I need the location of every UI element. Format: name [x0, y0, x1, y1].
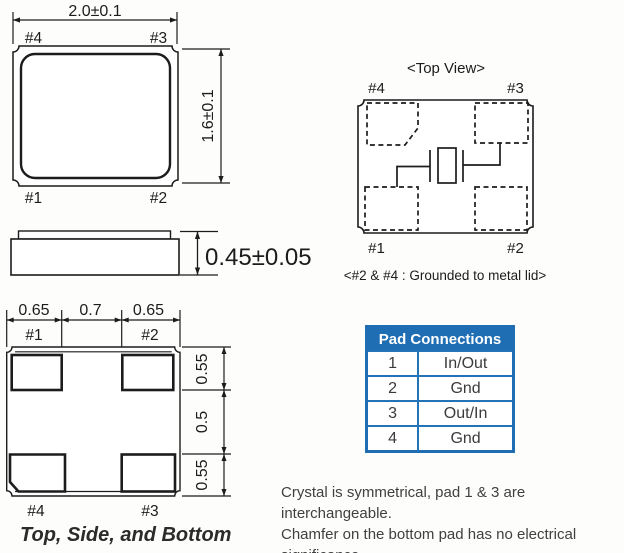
- side-view-drawing: 0.45±0.05: [0, 215, 312, 285]
- body-side-profile: [11, 239, 179, 275]
- pad-4-chamfered: [10, 455, 65, 492]
- footnote-line: significance.: [281, 545, 624, 553]
- pad-label-4: #4: [25, 30, 43, 47]
- pad-label-1: #1: [25, 190, 42, 207]
- table-row: 1 In/Out: [367, 351, 514, 376]
- arrowhead-icon: [170, 17, 177, 22]
- pad-number-cell: 1: [367, 351, 419, 376]
- connection-cell: Gnd: [418, 376, 513, 401]
- arrowhead-icon: [222, 447, 227, 454]
- footnote-line: Chamfer on the bottom pad has no electri…: [281, 524, 624, 545]
- arrowhead-icon: [62, 318, 69, 323]
- table-title: Pad Connections: [367, 327, 514, 352]
- pad-2: [122, 355, 173, 390]
- arrowhead-icon: [222, 390, 227, 397]
- pad-width-dimension: 0.65: [133, 302, 164, 319]
- arrowhead-icon: [122, 318, 129, 323]
- arrowhead-icon: [55, 318, 62, 323]
- pad-label-3: #3: [150, 30, 167, 47]
- arrowhead-icon: [222, 489, 227, 496]
- arrowhead-icon: [7, 318, 14, 323]
- arrowhead-icon: [218, 49, 223, 56]
- package-outline: [358, 100, 533, 233]
- pad-number-cell: 3: [367, 401, 419, 426]
- arrowhead-icon: [195, 232, 200, 240]
- width-dimension: 2.0±0.1: [68, 3, 121, 20]
- pad-label-3: #3: [141, 503, 158, 520]
- arrowhead-icon: [13, 17, 20, 22]
- package-outline: [13, 46, 178, 186]
- footnote-line: Crystal is symmetrical, pad 1 & 3 are in…: [281, 482, 624, 524]
- table-row: 3 Out/In: [367, 401, 514, 426]
- pad-label-2: #2: [150, 190, 167, 207]
- pad-label-2: #2: [141, 327, 158, 344]
- datasheet-package-drawing: 2.0±0.1 #4 #3 #1 #2 1.6±0.1 0.45±0.05 0.…: [0, 0, 624, 553]
- pad-label-2: #2: [507, 240, 524, 257]
- schematic-top-view: <Top View> #4 #3 #1 #2 <#2 & #4 : Ground…: [345, 55, 624, 290]
- view-caption: Top, Side, and Bottom: [20, 524, 240, 547]
- pad-1: [12, 355, 62, 390]
- pad-label-1: #1: [368, 240, 385, 257]
- connection-cell: Out/In: [418, 401, 513, 426]
- arrowhead-icon: [173, 318, 180, 323]
- height-dimension: 1.6±0.1: [200, 89, 217, 142]
- connection-cell: Gnd: [418, 426, 513, 452]
- top-view-drawing: 2.0±0.1 #4 #3 #1 #2 1.6±0.1: [0, 0, 312, 214]
- pad-height-dimension: 0.55: [194, 459, 211, 490]
- arrowhead-icon: [195, 268, 200, 276]
- arrowhead-icon: [222, 454, 227, 461]
- footnote-text: Crystal is symmetrical, pad 1 & 3 are in…: [281, 482, 624, 553]
- pad-3: [122, 455, 175, 492]
- lid-side-profile: [19, 231, 171, 239]
- grounding-note: <#2 & #4 : Grounded to metal lid>: [344, 268, 547, 283]
- pad-label-1: #1: [25, 327, 42, 344]
- connection-cell: In/Out: [418, 351, 513, 376]
- pad-gap-dimension: 0.7: [79, 302, 101, 319]
- table-row: 4 Gnd: [367, 426, 514, 452]
- pad-height-dimension: 0.55: [194, 353, 211, 384]
- table-header-row: Pad Connections: [367, 327, 514, 352]
- table-row: 2 Gnd: [367, 376, 514, 401]
- pad-label-4: #4: [368, 80, 385, 97]
- schematic-title: <Top View>: [407, 60, 485, 77]
- bottom-view-drawing: 0.65 0.7 0.65 #1 #2 #4 #3: [0, 285, 245, 553]
- pad-label-4: #4: [27, 503, 45, 520]
- pad-connections-table: Pad Connections 1 In/Out 2 Gnd 3 Out/In …: [365, 325, 515, 453]
- pad-number-cell: 4: [367, 426, 419, 452]
- pad-label-3: #3: [507, 80, 524, 97]
- pad-gap-dimension: 0.5: [194, 411, 211, 433]
- thickness-dimension: 0.45±0.05: [205, 244, 312, 271]
- arrowhead-icon: [222, 383, 227, 390]
- arrowhead-icon: [218, 176, 223, 183]
- arrowhead-icon: [115, 318, 122, 323]
- pad-width-dimension: 0.65: [18, 302, 49, 319]
- arrowhead-icon: [222, 347, 227, 354]
- pad-number-cell: 2: [367, 376, 419, 401]
